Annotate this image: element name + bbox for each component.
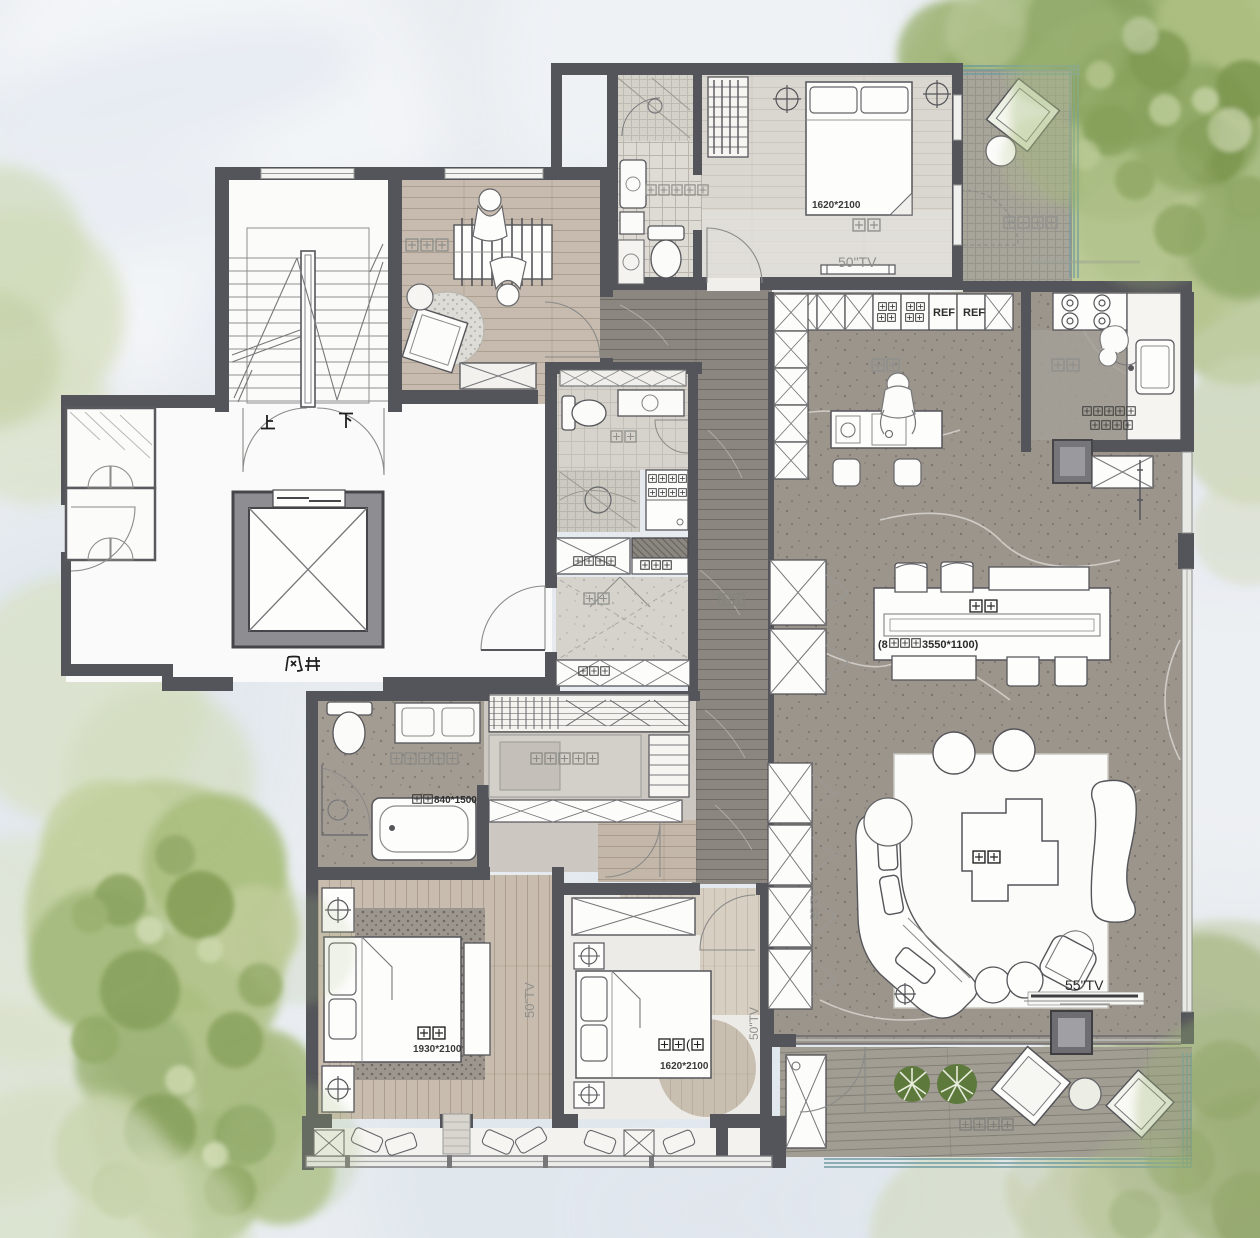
svg-text:50"TV: 50"TV — [522, 982, 537, 1018]
svg-text:REF: REF — [933, 307, 955, 319]
svg-text:1620*2100: 1620*2100 — [812, 200, 861, 211]
svg-text:(: ( — [686, 1037, 691, 1052]
svg-text:55"TV: 55"TV — [1065, 977, 1104, 993]
svg-text:3550*1100): 3550*1100) — [922, 639, 979, 651]
svg-text:55"TV: 55"TV — [809, 889, 821, 920]
svg-text:REF: REF — [963, 307, 985, 319]
svg-text:1620*2100: 1620*2100 — [660, 1061, 709, 1072]
svg-text:840*1500: 840*1500 — [434, 795, 477, 806]
svg-text:(8: (8 — [878, 639, 888, 651]
svg-text:1930*2100: 1930*2100 — [413, 1044, 462, 1055]
svg-text:50"TV: 50"TV — [747, 1007, 761, 1040]
svg-text:50"TV: 50"TV — [838, 254, 877, 270]
